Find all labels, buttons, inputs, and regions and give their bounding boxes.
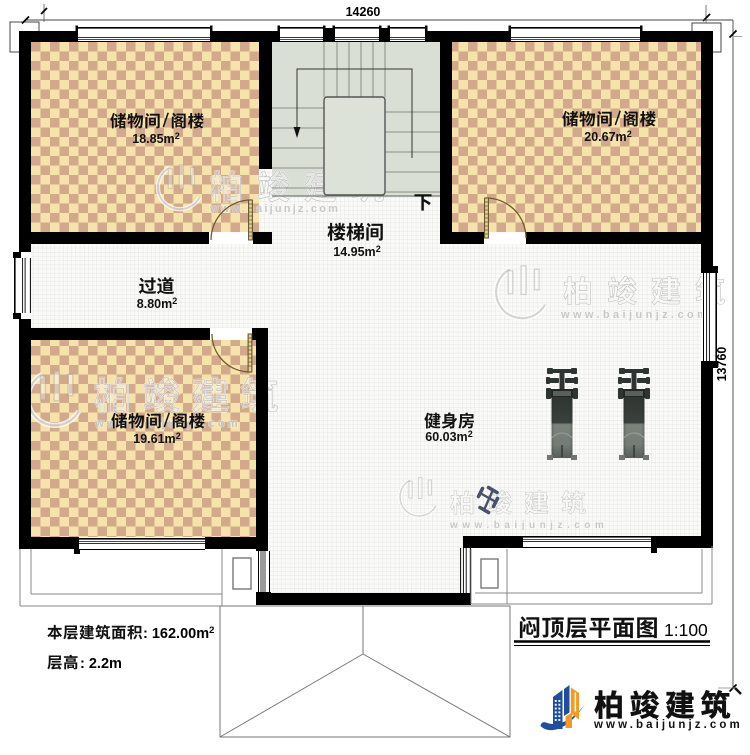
svg-text:www.baijunjz.com: www.baijunjz.com [593,719,743,731]
svg-text:14.95m2: 14.95m2 [333,244,380,259]
svg-text:14260: 14260 [346,5,381,19]
svg-text:20.67m2: 20.67m2 [584,129,631,144]
svg-text:8.80m2: 8.80m2 [137,296,177,311]
svg-text:60.03m2: 60.03m2 [425,429,472,444]
svg-text:www.baijunjz.com: www.baijunjz.com [560,309,710,321]
svg-text:: 162.00m2: : 162.00m2 [143,625,214,642]
svg-text:: 2.2m: : 2.2m [80,656,122,672]
svg-text:18.85m2: 18.85m2 [132,131,179,146]
svg-text:13760: 13760 [715,347,729,382]
svg-text:www.baijunjz.com: www.baijunjz.com [209,203,340,215]
svg-text:www.baijunjz.com: www.baijunjz.com [449,520,608,531]
svg-text:1:100: 1:100 [664,620,708,640]
svg-text:19.61m2: 19.61m2 [133,431,180,446]
